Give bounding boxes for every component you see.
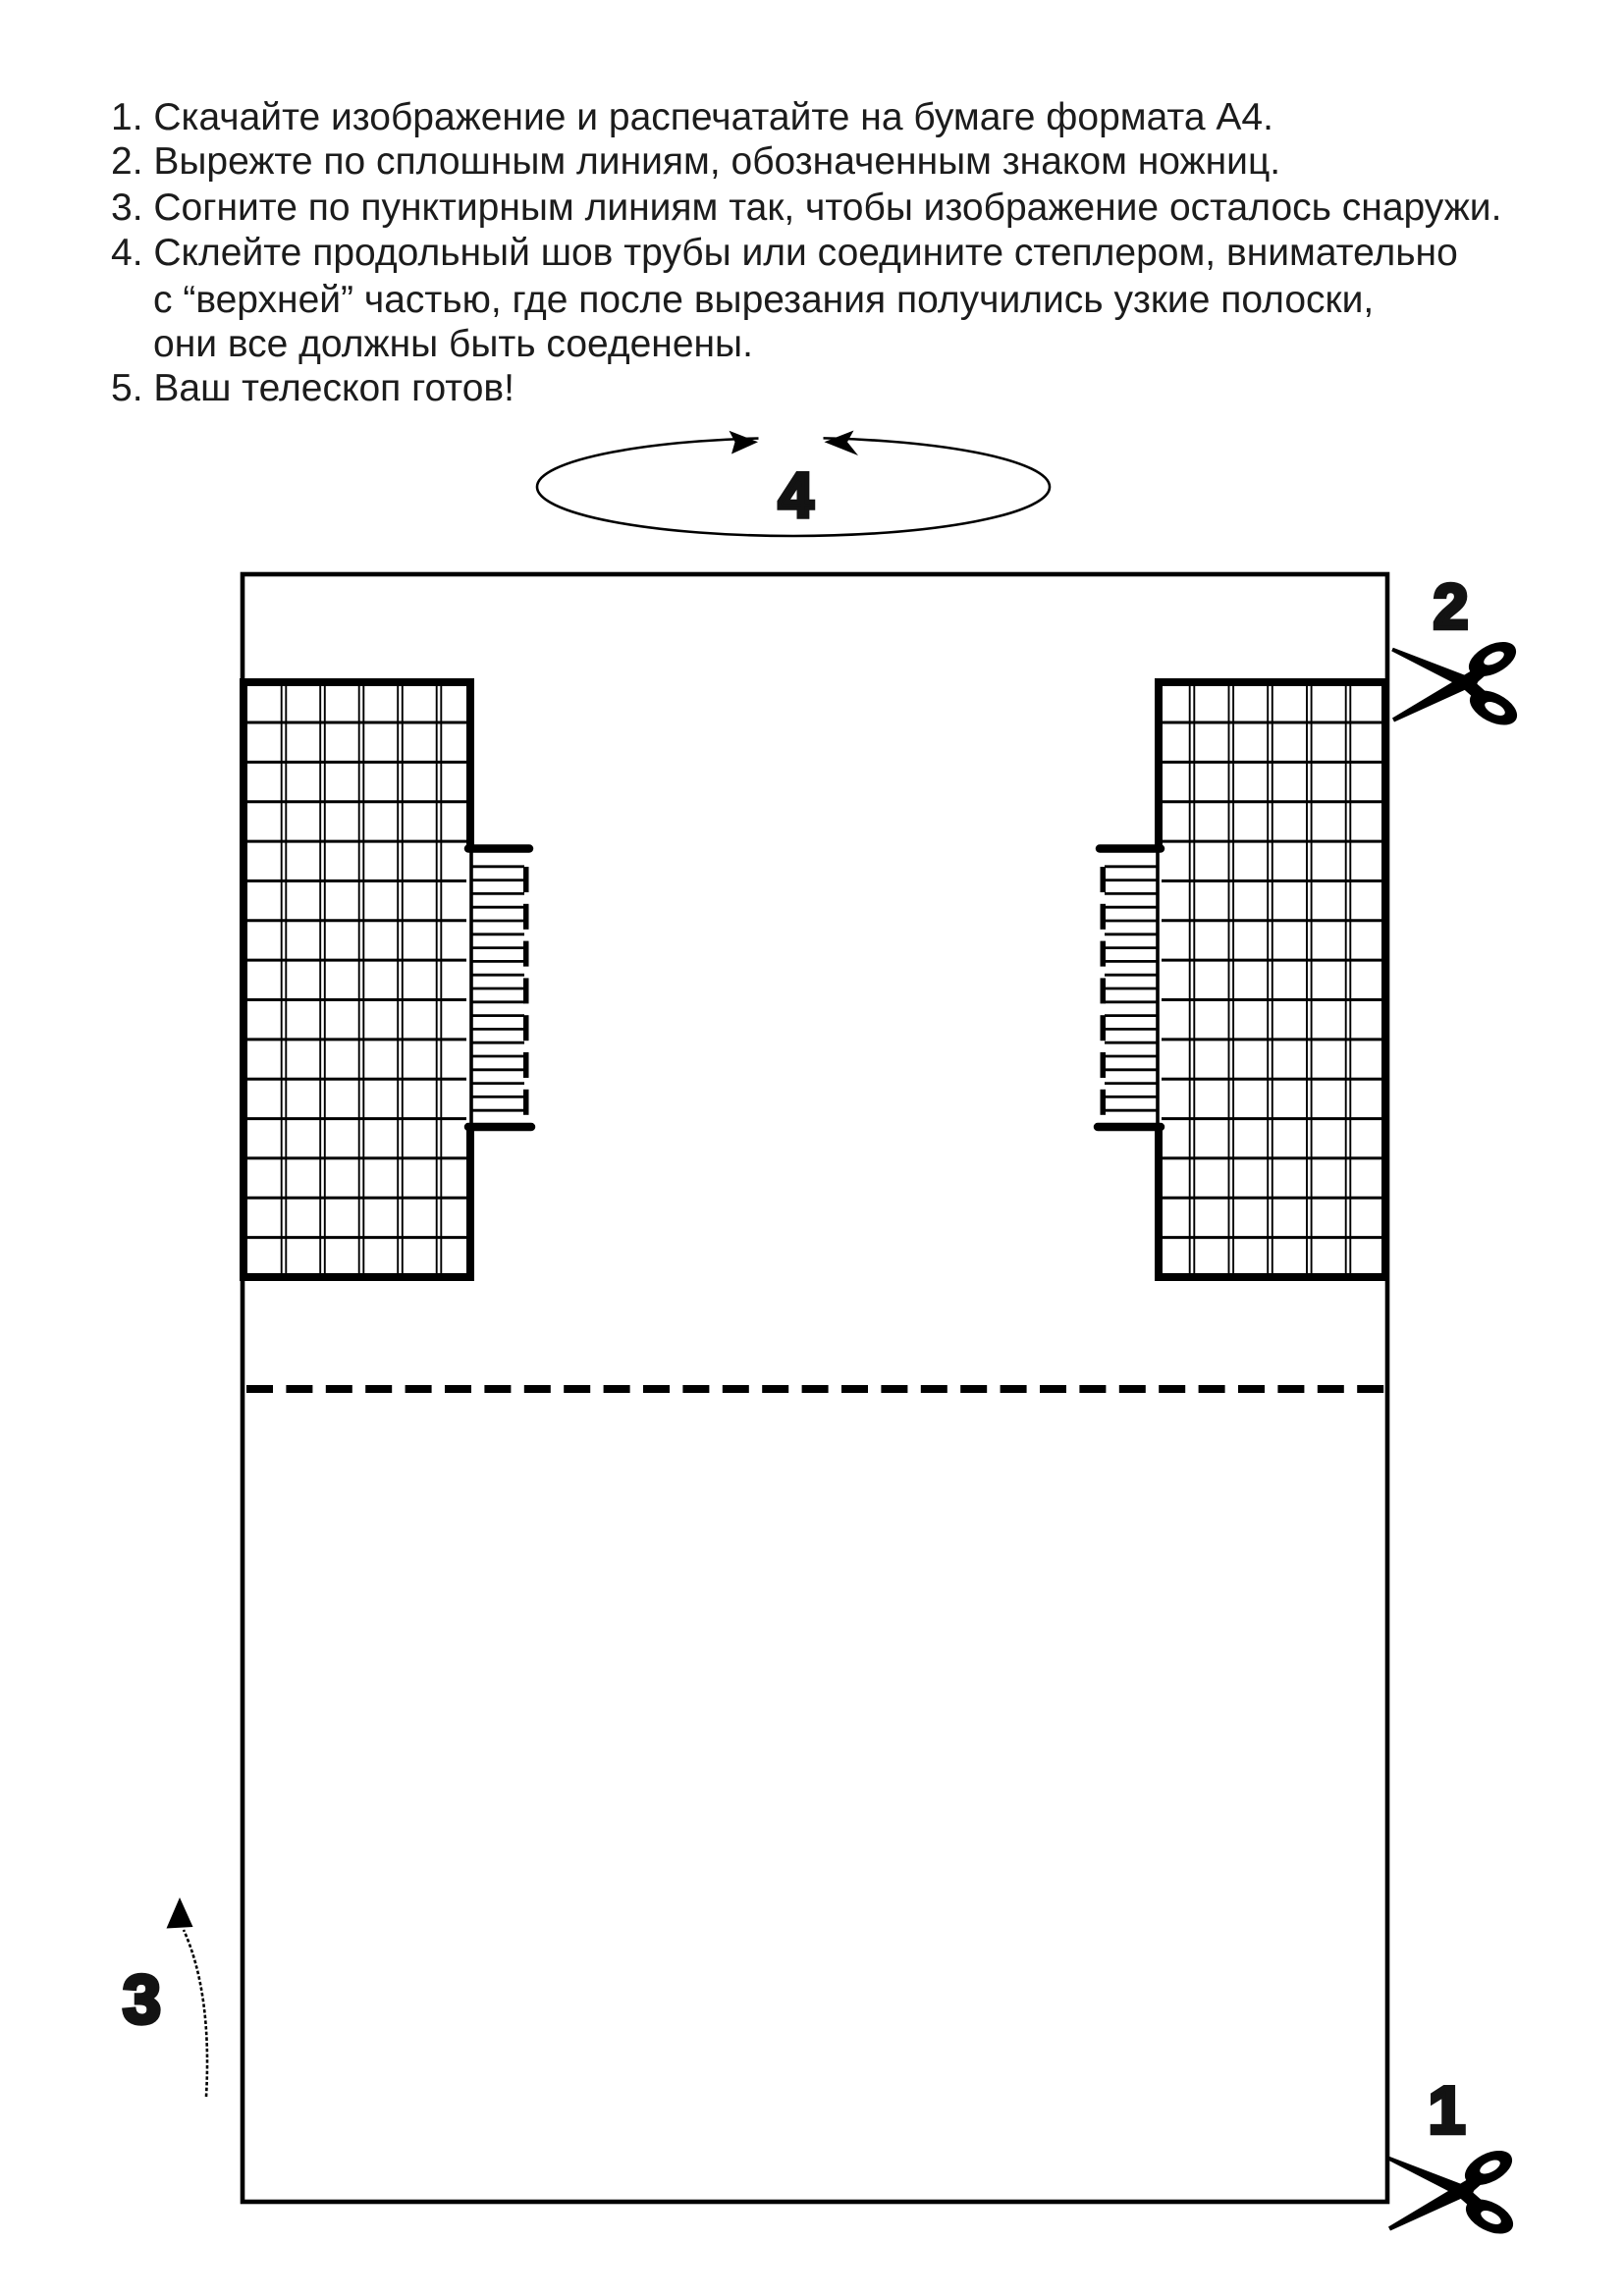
svg-text:1: 1 — [1429, 2073, 1466, 2148]
svg-text:2: 2 — [1434, 571, 1469, 642]
svg-text:3: 3 — [123, 1961, 161, 2038]
svg-text:4: 4 — [779, 460, 814, 531]
